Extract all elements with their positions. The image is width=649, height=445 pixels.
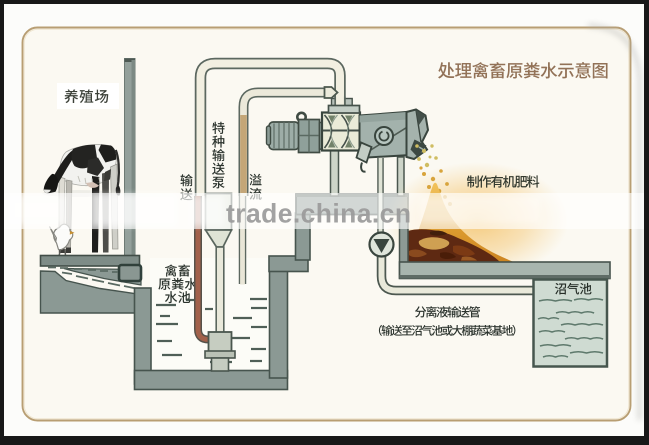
svg-text:trade.china.cn: trade.china.cn [226, 199, 411, 229]
